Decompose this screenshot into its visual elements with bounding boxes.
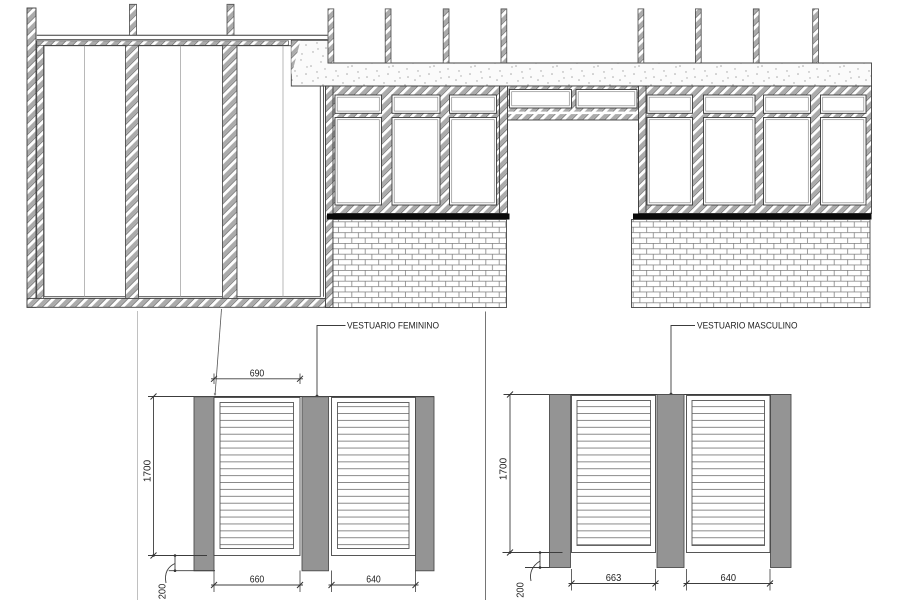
svg-text:640: 640 [366,575,381,586]
svg-text:1700: 1700 [499,457,510,480]
svg-text:1700: 1700 [143,459,154,482]
svg-text:663: 663 [606,573,622,584]
svg-text:VESTUARIO MASCULINO: VESTUARIO MASCULINO [697,320,798,330]
svg-text:660: 660 [250,575,265,586]
svg-text:200: 200 [158,583,169,599]
svg-text:690: 690 [250,369,265,380]
svg-text:200: 200 [516,582,527,598]
svg-text:VESTUARIO FEMININO: VESTUARIO FEMININO [347,320,439,330]
svg-text:640: 640 [721,573,737,584]
